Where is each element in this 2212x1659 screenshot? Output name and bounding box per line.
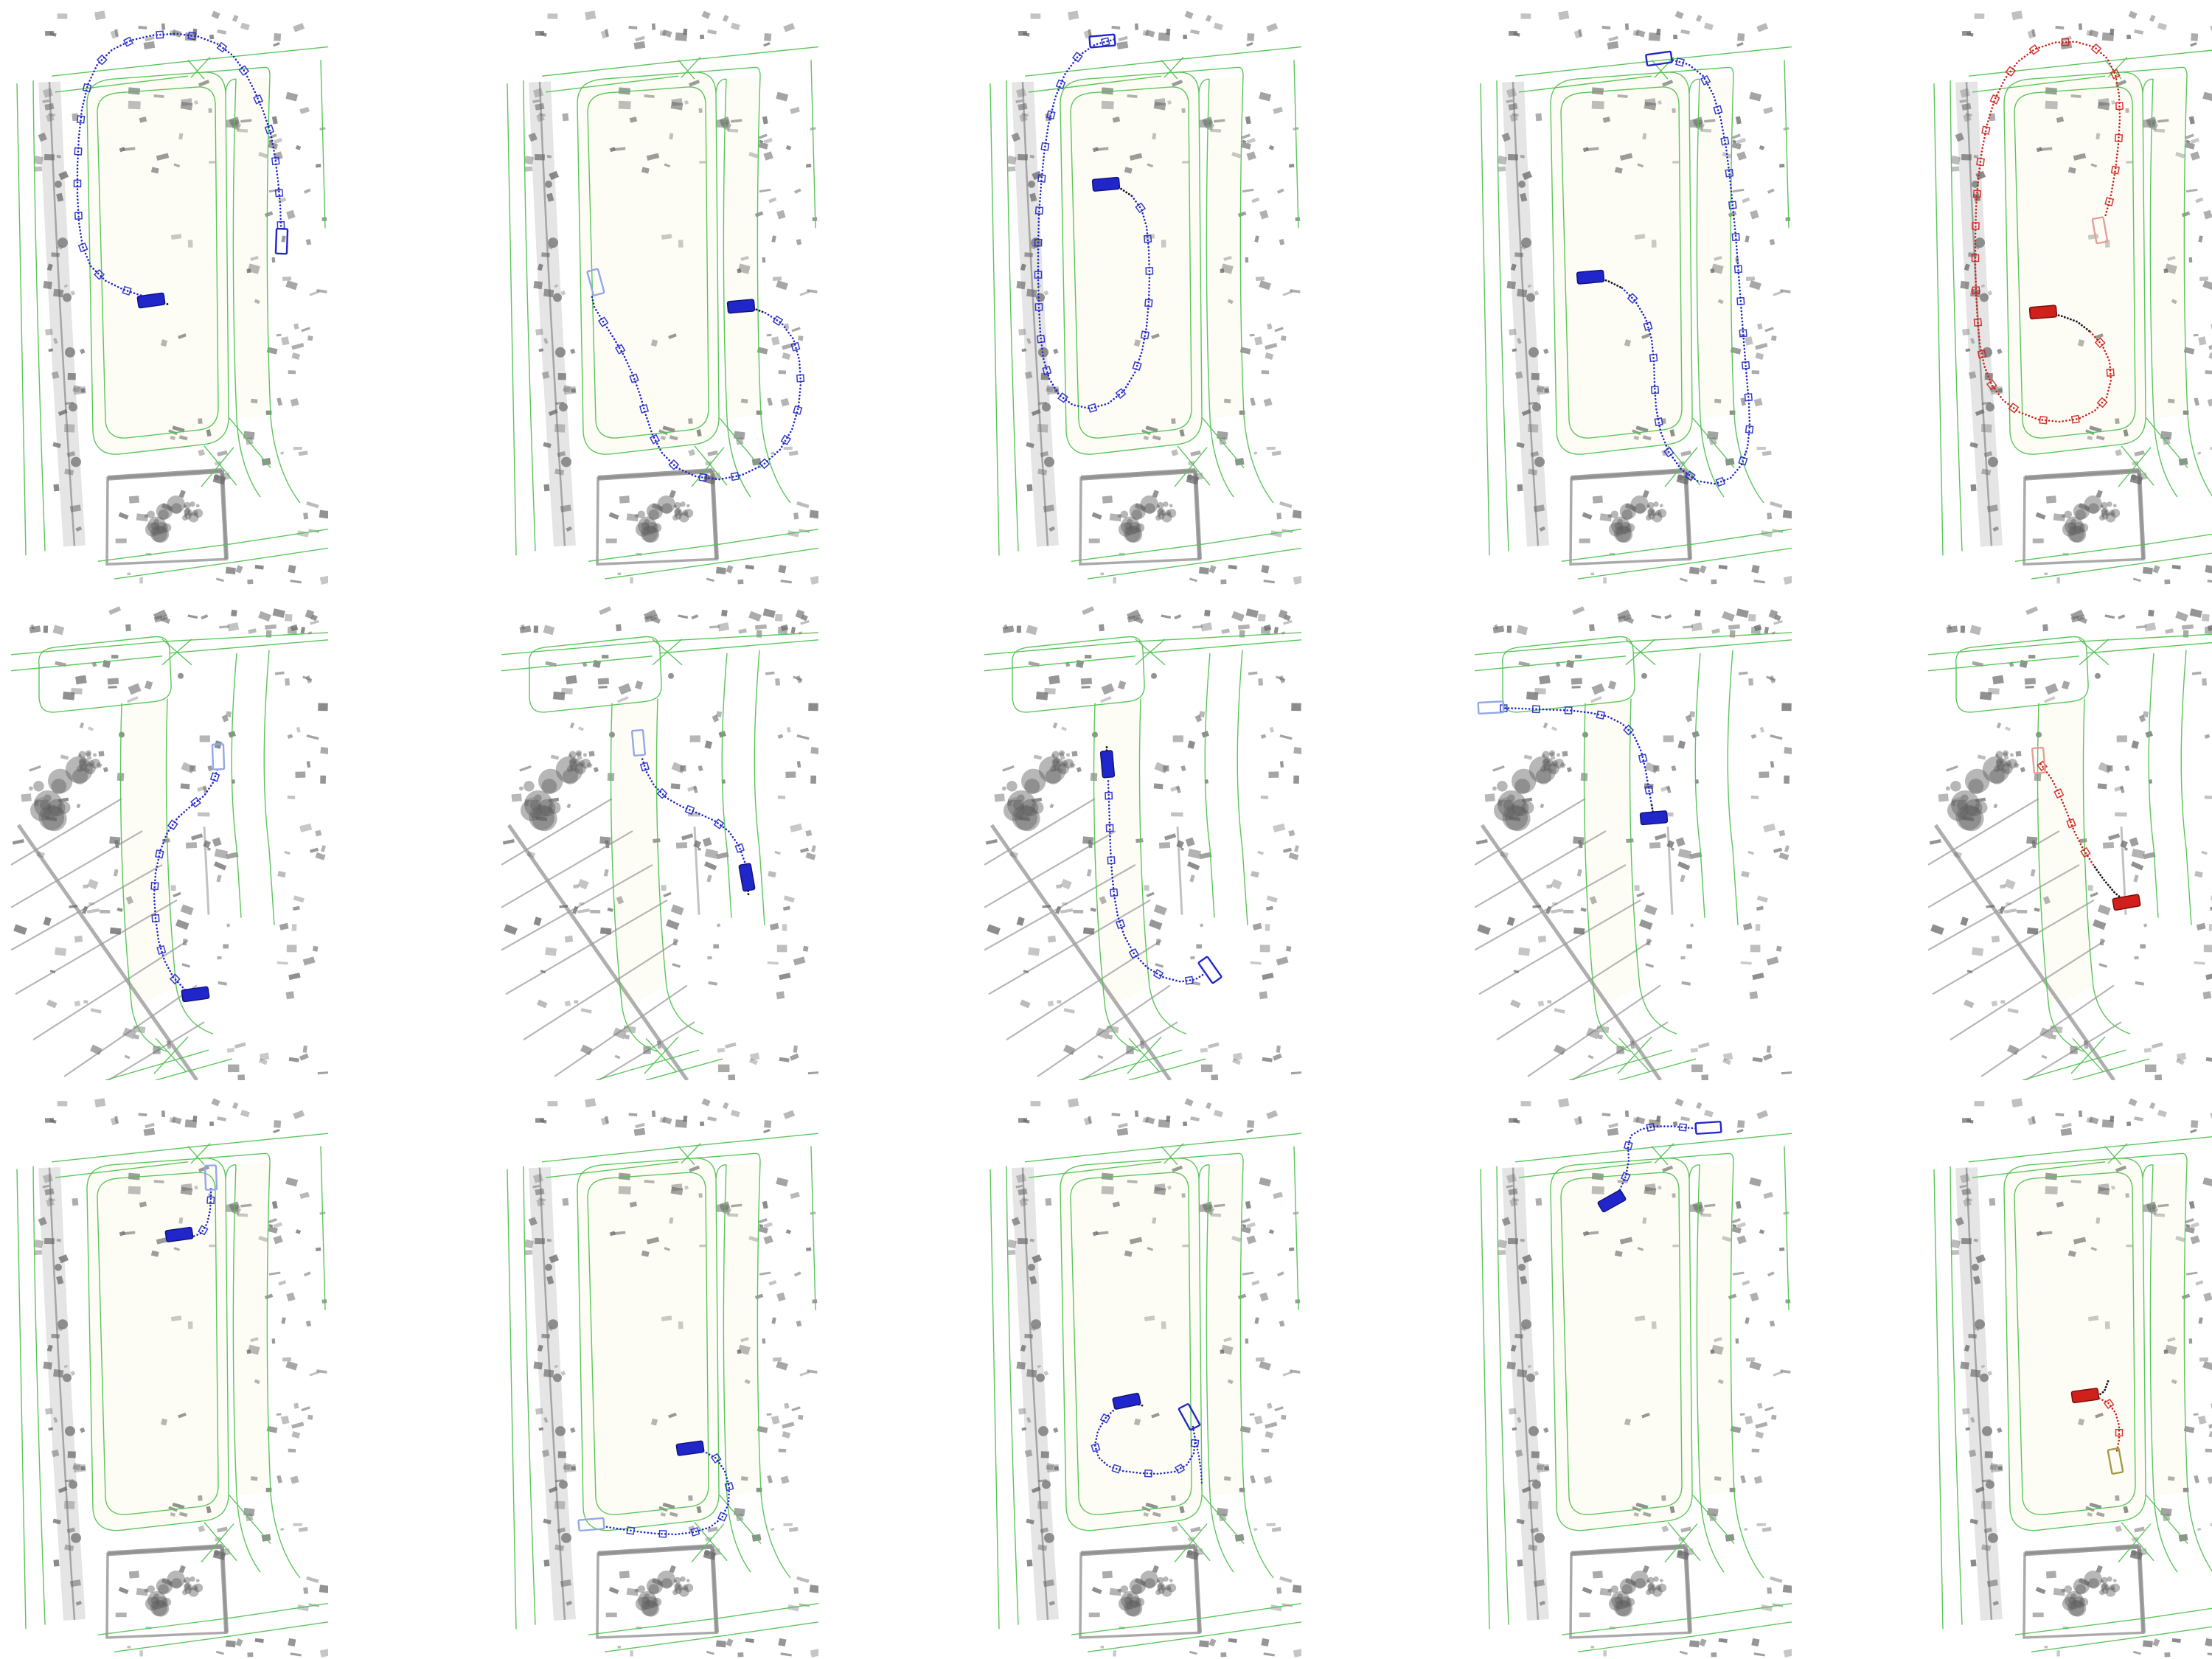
map-background: [1475, 606, 1792, 1080]
map-canvas: [1475, 606, 1792, 1080]
agent-vehicle-marker: [2029, 305, 2056, 319]
map-canvas: [1928, 606, 2212, 1080]
trajectory-panel-r3c2: [501, 1096, 818, 1659]
agent-vehicle-marker: [1640, 811, 1667, 825]
map-canvas: [11, 1096, 328, 1659]
agent-vehicle-marker: [1092, 177, 1119, 191]
map-canvas: [1928, 9, 2212, 586]
lane-graph: [984, 633, 1301, 1080]
trajectory-panel-r2c1: [11, 606, 328, 1080]
agent-vehicle-marker: [739, 863, 755, 891]
goal-box-marker: [1198, 956, 1222, 983]
map-canvas: [1928, 1096, 2212, 1659]
map-background: [17, 1098, 328, 1658]
waypoint-marker: [691, 1528, 699, 1536]
trajectory-panel-r1c4: [1475, 9, 1792, 586]
lane-graph: [501, 633, 818, 1080]
agent-vehicle-marker: [1100, 751, 1114, 778]
map-background: [501, 606, 818, 1080]
waypoint-marker: [782, 436, 790, 445]
map-background: [507, 10, 818, 584]
map-background: [984, 606, 1301, 1080]
trajectory-panel-r1c2: [501, 9, 818, 586]
trajectory-panel-r1c3: [984, 9, 1301, 586]
goal-box-marker: [1646, 52, 1672, 66]
trajectory-panel-r2c5: [1928, 606, 2212, 1080]
trajectory-panel-r1c1: [11, 9, 328, 586]
trajectory-panel-r2c3: [984, 606, 1301, 1080]
map-background: [17, 10, 328, 584]
agent-vehicle-marker: [2112, 894, 2140, 911]
map-canvas: [11, 9, 328, 586]
map-texture: [503, 606, 818, 1080]
map-canvas: [501, 606, 818, 1080]
map-canvas: [984, 1096, 1301, 1659]
trajectory-panel-r3c1: [11, 1096, 328, 1659]
map-canvas: [984, 606, 1301, 1080]
goal-box-marker: [1696, 1121, 1722, 1134]
map-texture: [986, 606, 1301, 1080]
map-background: [1934, 10, 2212, 584]
map-background: [990, 10, 1301, 584]
agent-vehicle-marker: [1576, 270, 1604, 284]
map-background: [11, 606, 328, 1080]
trajectory-panel-r1c5: [1928, 9, 2212, 586]
map-canvas: [984, 9, 1301, 586]
lane-graph: [11, 633, 328, 1080]
waypoint-marker: [265, 125, 274, 133]
waypoint-marker: [1990, 95, 1999, 104]
map-background: [1934, 1098, 2212, 1658]
map-canvas: [501, 9, 818, 586]
waypoint-marker: [1102, 38, 1110, 46]
map-background: [990, 1098, 1301, 1658]
trajectory-panel-r2c4: [1475, 606, 1792, 1080]
agent-vehicle-marker: [181, 987, 209, 1002]
map-background: [1928, 606, 2212, 1080]
map-canvas: [501, 1096, 818, 1659]
lane-graph: [1475, 633, 1792, 1080]
map-canvas: [1475, 1096, 1792, 1659]
waypoint-marker: [124, 38, 133, 46]
trajectory-prediction-figure: [0, 0, 2212, 1659]
map-texture: [13, 606, 328, 1080]
map-texture: [1476, 606, 1792, 1080]
map-background: [1481, 1098, 1792, 1658]
agent-vehicle-marker: [727, 299, 754, 313]
map-canvas: [1475, 9, 1792, 586]
trajectory-panel-r2c2: [501, 606, 818, 1080]
trajectory-panel-r3c4: [1475, 1096, 1792, 1659]
map-background: [507, 1098, 818, 1658]
trajectory-panel-r3c5: [1928, 1096, 2212, 1659]
trajectory-panel-r3c3: [984, 1096, 1301, 1659]
waypoint-marker: [1154, 970, 1163, 978]
map-canvas: [11, 606, 328, 1080]
